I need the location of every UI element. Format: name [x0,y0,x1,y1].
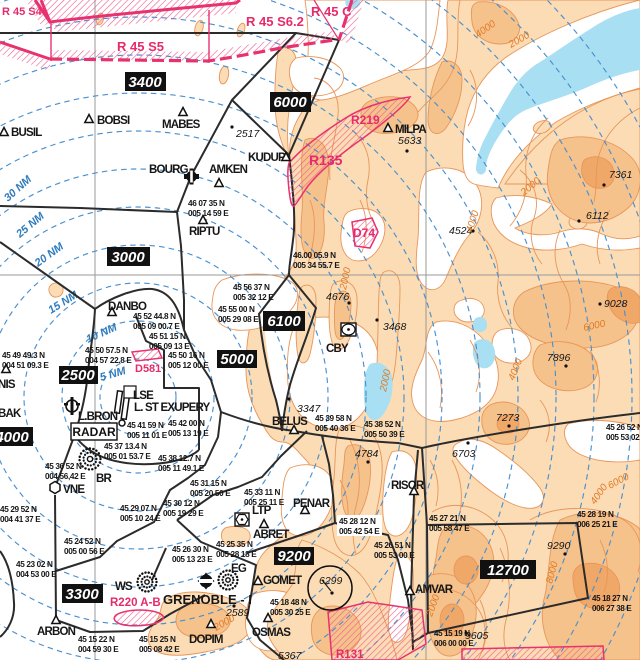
svg-text:WS: WS [115,581,133,593]
svg-text:RIPTU: RIPTU [189,226,220,238]
svg-text:45 31 15 N005 20 50 E: 45 31 15 N005 20 50 E [190,479,231,498]
svg-text:VNE: VNE [63,484,85,496]
svg-text:45 18 48 N005 30 25 E: 45 18 48 N005 30 25 E [270,598,311,617]
svg-text:R 45 S5: R 45 S5 [117,39,164,54]
svg-text:45 23 02 N004 53 00 E: 45 23 02 N004 53 00 E [16,560,57,579]
svg-text:3468: 3468 [383,321,407,333]
svg-text:45 38 12.7 N005 11 49.1 E: 45 38 12.7 N005 11 49.1 E [158,454,205,473]
svg-text:BELUS: BELUS [272,416,308,428]
svg-text:7361: 7361 [609,169,632,181]
svg-text:PENAR: PENAR [293,498,331,510]
svg-text:45 38 52 N005 50 39 E: 45 38 52 N005 50 39 E [364,420,405,439]
svg-text:45 33 11 N005 25 11 E: 45 33 11 N005 25 11 E [244,488,285,507]
svg-text:5633: 5633 [398,135,422,147]
svg-text:ABRET: ABRET [253,529,289,541]
svg-text:6112: 6112 [586,210,609,222]
svg-text:EG: EG [231,563,247,575]
svg-text:46.00 05.9 N005 34 55.7 E: 46.00 05.9 N005 34 55.7 E [293,251,340,270]
svg-text:KUDUP: KUDUP [248,152,286,164]
svg-text:3300: 3300 [65,586,99,603]
svg-text:45 26 51 N005 53 00 E: 45 26 51 N005 53 00 E [374,541,415,560]
svg-text:45 29 07 N005 10 24 E: 45 29 07 N005 10 24 E [120,504,161,523]
svg-text:RISOR: RISOR [391,480,425,492]
svg-text:AMKEN: AMKEN [209,164,248,176]
svg-text:7273: 7273 [496,412,520,424]
svg-text:45 56 37 N005 32 12 E: 45 56 37 N005 32 12 E [233,283,274,302]
svg-text:MABES: MABES [162,119,201,131]
svg-text:45 15 22 N004 59 30 E: 45 15 22 N004 59 30 E [78,635,119,654]
svg-text:BOURG: BOURG [149,164,189,176]
svg-text:OSMAS: OSMAS [252,627,291,639]
svg-text:45 41 59 N005 11 01 E: 45 41 59 N005 11 01 E [127,421,168,440]
svg-text:9290: 9290 [547,540,571,552]
svg-text:45 27 21 N005 58 47 E: 45 27 21 N005 58 47 E [429,514,470,533]
svg-text:CBY: CBY [326,343,349,355]
svg-text:4000: 4000 [0,429,29,446]
svg-text:GRENOBLE - I: GRENOBLE - I [163,592,252,607]
svg-text:45 37 13.4 N005 01 53.7 E: 45 37 13.4 N005 01 53.7 E [104,442,151,461]
svg-text:L. ST EXUPERY: L. ST EXUPERY [134,402,211,414]
svg-text:BAK: BAK [0,408,22,420]
svg-text:3347: 3347 [297,403,322,415]
svg-text:45 50 16 N005 12 00 E: 45 50 16 N005 12 00 E [168,351,209,370]
svg-text:R 45 S4: R 45 S4 [2,6,43,18]
svg-text:12700: 12700 [487,562,529,579]
svg-text:45 30 12 N005 19 29 E: 45 30 12 N005 19 29 E [163,499,204,518]
svg-text:4784: 4784 [355,448,379,460]
svg-text:6100: 6100 [267,313,301,330]
svg-text:7896: 7896 [547,352,571,364]
svg-text:6703: 6703 [452,448,476,460]
svg-text:45 26 30 N005 13 23 E: 45 26 30 N005 13 23 E [172,545,213,564]
svg-text:3000: 3000 [111,249,145,266]
svg-text:45 51 15 N005 09 13 E: 45 51 15 N005 09 13 E [149,332,190,351]
svg-text:45 50 57.5 N004 57 22.8 E: 45 50 57.5 N004 57 22.8 E [85,346,132,365]
svg-text:45 24 52 N005 00 56 E: 45 24 52 N005 00 56 E [64,537,105,556]
svg-text:R 45 S6.2: R 45 S6.2 [246,14,304,29]
svg-text:R131: R131 [336,649,364,660]
svg-text:NIS: NIS [0,379,16,391]
svg-text:R219: R219 [351,113,380,127]
svg-text:D581: D581 [135,363,161,375]
svg-text:46 07 35 N005 14 59 E: 46 07 35 N005 14 59 E [188,199,229,218]
svg-text:45 15 25 N005 08 42 E: 45 15 25 N005 08 42 E [139,635,180,654]
svg-text:6000: 6000 [273,94,307,111]
svg-text:9605: 9605 [465,630,489,642]
svg-text:45 28 12 N005 42 54 E: 45 28 12 N005 42 54 E [339,517,380,536]
svg-text:BR: BR [96,473,113,485]
svg-text:GOMET: GOMET [263,575,302,587]
svg-text:ARBON: ARBON [37,626,76,638]
svg-text:45 55 00 N005 29 08 E: 45 55 00 N005 29 08 E [218,305,259,324]
svg-text:9028: 9028 [604,298,628,310]
svg-text:RADAR: RADAR [72,425,116,439]
svg-text:45 28 19 N006 25 21 E: 45 28 19 N006 25 21 E [577,510,618,529]
svg-text:R220 A-B: R220 A-B [110,597,161,609]
svg-text:L.BRON: L.BRON [78,411,118,423]
svg-text:5367: 5367 [278,650,303,660]
svg-text:5000: 5000 [220,351,254,368]
svg-text:4676: 4676 [326,291,350,303]
svg-text:6299: 6299 [319,575,343,587]
svg-text:45 42 00 N005 13 19 E: 45 42 00 N005 13 19 E [168,419,209,438]
svg-text:LSE: LSE [133,390,154,402]
svg-text:45 49 49.3 N004 51 09.3 E: 45 49 49.3 N004 51 09.3 E [2,351,49,370]
svg-text:45 25 35 N005 28 18 E: 45 25 35 N005 28 18 E [216,540,257,559]
svg-text:BOBSI: BOBSI [97,115,130,127]
svg-text:R135: R135 [309,152,343,168]
svg-text:45 52 44.8 N005 09 00.7 E: 45 52 44.8 N005 09 00.7 E [133,312,180,331]
svg-text:2517: 2517 [235,128,261,140]
svg-text:BUSIL: BUSIL [11,127,42,139]
svg-text:9200: 9200 [277,548,311,565]
svg-text:45 29 52 N004 41 37 E: 45 29 52 N004 41 37 E [0,505,41,524]
svg-text:45 26 52 N005 53 02 E: 45 26 52 N005 53 02 E [606,423,640,442]
svg-text:45 36 52 N004 56,42 E: 45 36 52 N004 56,42 E [45,462,86,481]
svg-text:2500: 2500 [60,367,95,384]
svg-text:3400: 3400 [128,74,162,91]
svg-text:R 45 C: R 45 C [311,4,352,19]
svg-text:D74: D74 [353,226,375,240]
svg-text:DOPIM: DOPIM [189,634,223,646]
svg-text:45 39 58 N005 40 36 E: 45 39 58 N005 40 36 E [315,414,356,433]
svg-text:45 18 27 N006 27 38 E: 45 18 27 N006 27 38 E [592,594,632,613]
